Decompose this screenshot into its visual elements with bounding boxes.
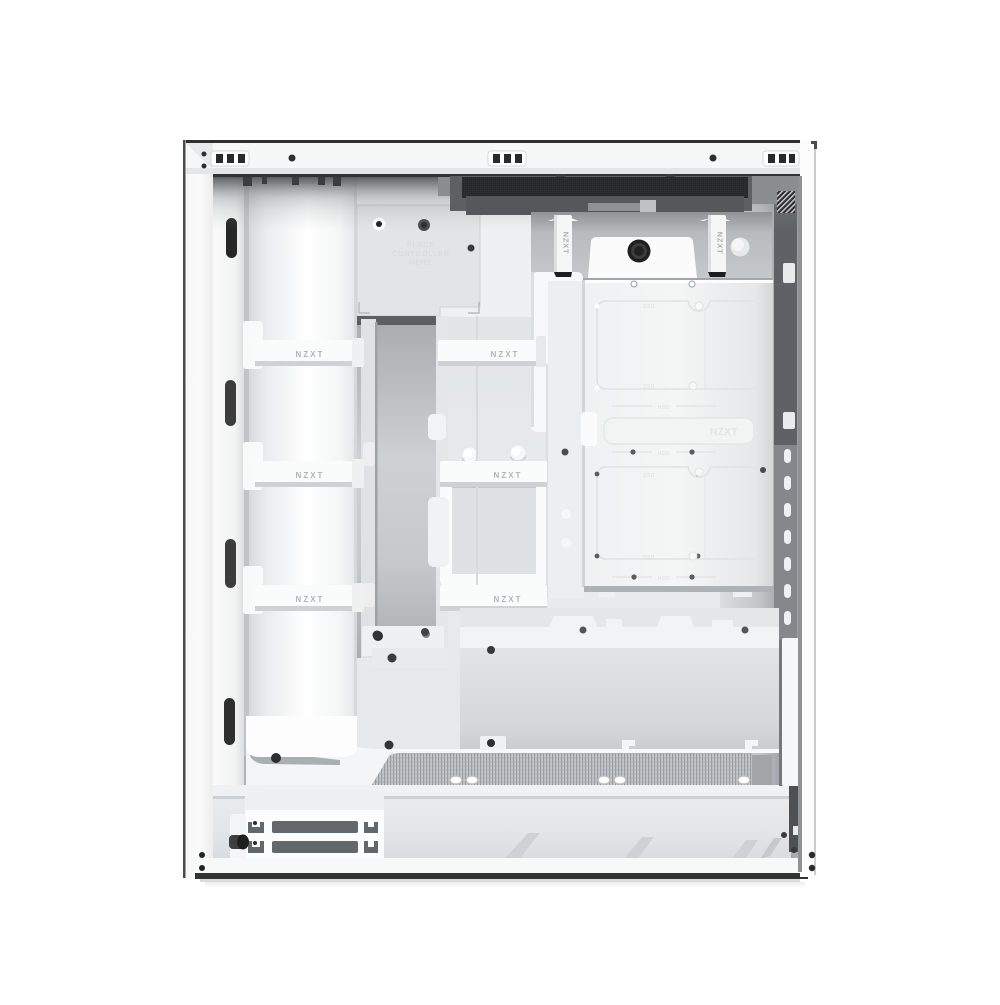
svg-text:NZXT: NZXT: [296, 471, 325, 480]
svg-text:NZXT: NZXT: [494, 471, 523, 480]
svg-text:SSD: SSD: [643, 304, 655, 310]
svg-text:SSD: SSD: [643, 555, 655, 561]
svg-text:NZXT: NZXT: [710, 427, 738, 438]
svg-text:HDD: HDD: [658, 451, 670, 457]
svg-text:NZXT: NZXT: [491, 350, 520, 359]
svg-text:CONTROLLER: CONTROLLER: [392, 251, 450, 258]
svg-text:SSD: SSD: [643, 384, 655, 390]
svg-text:NZXT: NZXT: [494, 595, 523, 604]
svg-text:NZXT: NZXT: [296, 350, 325, 359]
svg-text:NZXT: NZXT: [296, 595, 325, 604]
svg-text:PLACE: PLACE: [407, 242, 435, 249]
svg-text:NZXT: NZXT: [562, 232, 571, 255]
svg-text:HERE: HERE: [409, 260, 432, 267]
svg-text:HDD: HDD: [658, 576, 670, 582]
svg-text:SSD: SSD: [643, 473, 655, 479]
svg-text:HDD: HDD: [658, 405, 670, 411]
svg-text:NZXT: NZXT: [716, 232, 725, 255]
